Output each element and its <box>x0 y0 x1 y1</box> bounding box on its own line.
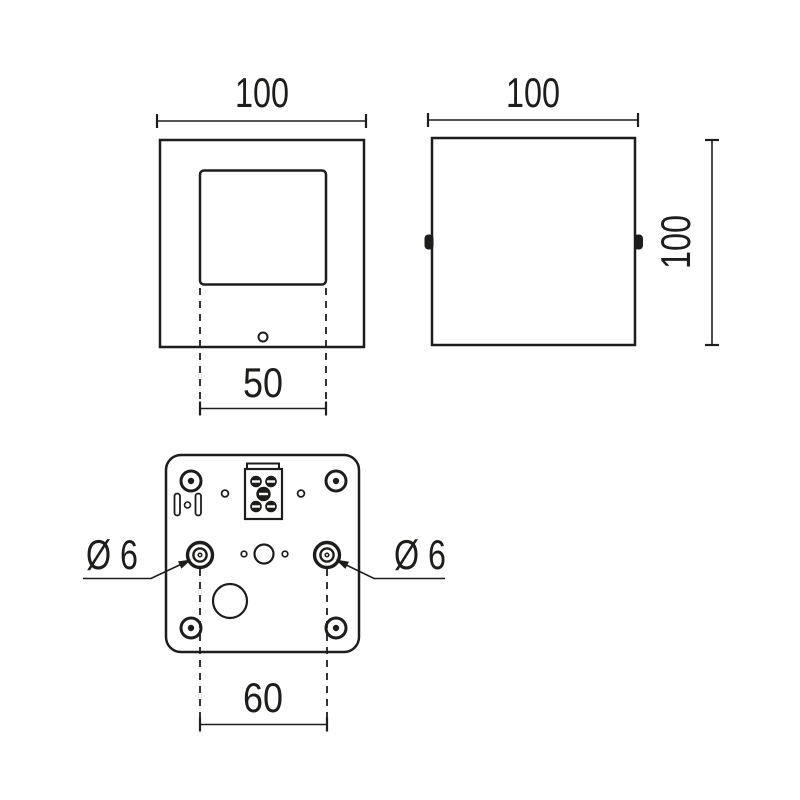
terminal-block <box>245 464 282 520</box>
front-width-dimension-label: 100 <box>235 69 289 116</box>
technical-drawing-canvas: 100 50 100 100 <box>0 0 800 800</box>
hole-dia-label-right: Ø 6 <box>394 531 446 578</box>
side-view: 100 100 <box>425 69 720 345</box>
hole-dia-label-left: Ø 6 <box>86 531 138 578</box>
side-height-dimension-label: 100 <box>652 215 699 269</box>
side-width-dimension-label: 100 <box>506 69 560 116</box>
side-body <box>432 138 635 345</box>
front-light-aperture <box>200 171 326 285</box>
front-view: 100 50 <box>157 69 366 416</box>
bottom-view: 60 Ø 6 Ø 6 <box>83 455 446 732</box>
front-screw-hole <box>259 333 268 342</box>
luminaire-dimension-drawing: 100 50 100 100 <box>0 0 800 800</box>
front-aperture-dimension-label: 50 <box>243 359 283 406</box>
hole-spacing-dimension-label: 60 <box>243 674 283 721</box>
